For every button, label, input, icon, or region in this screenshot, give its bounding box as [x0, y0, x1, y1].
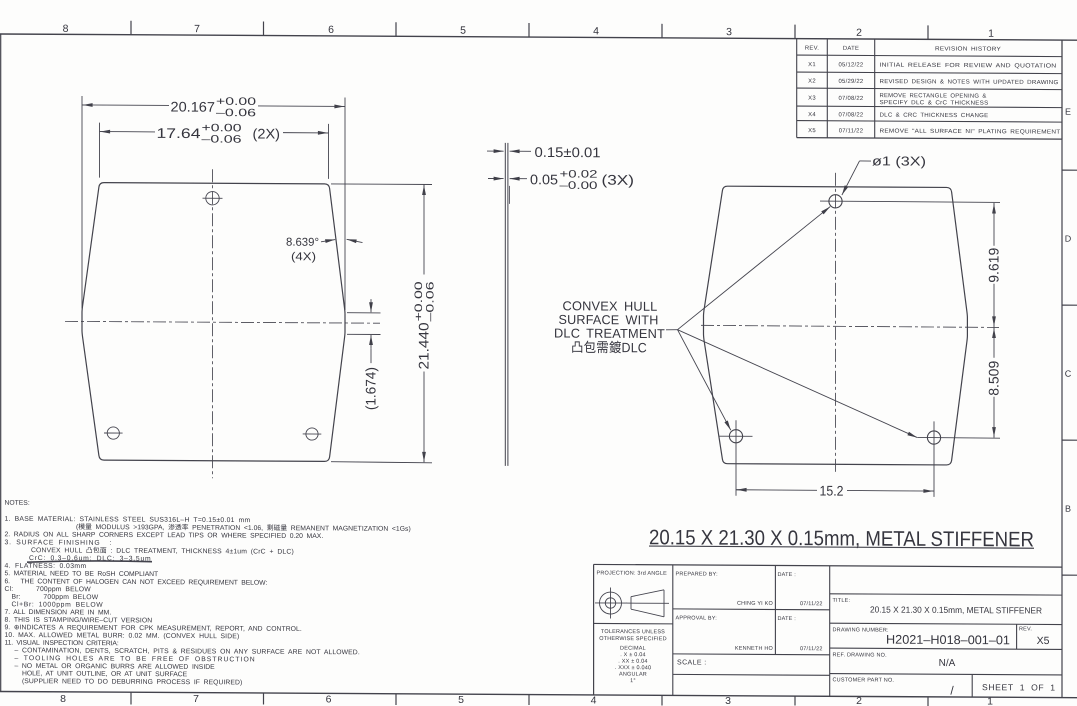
svg-text:E: E [1065, 107, 1071, 117]
svg-text:07/11/22: 07/11/22 [839, 128, 863, 134]
svg-text:1°: 1° [630, 678, 636, 684]
svg-text:7: 7 [194, 23, 200, 35]
svg-text:–0.06: –0.06 [425, 281, 437, 321]
svg-text:DRAWING NUMBER:: DRAWING NUMBER: [833, 627, 890, 633]
svg-text:. XX ± 0.04: . XX ± 0.04 [618, 659, 647, 665]
svg-text:CONVEX HULL 凸包面 : DLC TREATMEN: CONVEX HULL 凸包面 : DLC TREATMENT, THICKNE… [31, 545, 294, 556]
svg-text:(3X): (3X) [602, 172, 635, 188]
svg-text:REV.: REV. [805, 46, 819, 52]
svg-text:(SUPPLIER NEED TO DO DEBURRING: (SUPPLIER NEED TO DO DEBURRING PROCESS I… [22, 678, 243, 686]
svg-text:ø1 (3X): ø1 (3X) [872, 153, 926, 168]
svg-text:05/29/22: 05/29/22 [839, 79, 864, 85]
svg-text:C: C [1065, 369, 1072, 379]
svg-text:SCALE :: SCALE : [677, 659, 707, 666]
svg-text:PROJECTION: 3rd ANGLE: PROJECTION: 3rd ANGLE [597, 570, 668, 576]
svg-text:X5: X5 [808, 128, 816, 134]
svg-text:REV.: REV. [1019, 626, 1032, 632]
svg-text:07/08/22: 07/08/22 [839, 112, 864, 118]
svg-text:5. MATERIAL NEED TO BE RoSH CO: 5. MATERIAL NEED TO BE RoSH COMPLIANT [5, 570, 159, 578]
svg-text:DLC & CRC THICKNESS CHANGE: DLC & CRC THICKNESS CHANGE [880, 113, 989, 120]
svg-text:8.509: 8.509 [986, 360, 1002, 395]
svg-text:APPROVAL BY:: APPROVAL BY: [676, 615, 718, 621]
svg-text:REVISED DESIGN & NOTES WITH UP: REVISED DESIGN & NOTES WITH UPDATED DRAW… [880, 79, 1059, 86]
svg-text:3: 3 [725, 695, 731, 706]
svg-text:1. BASE MATERIAL: STAINLESS ST: 1. BASE MATERIAL: STAINLESS STEEL SUS316… [5, 516, 251, 524]
svg-text:07/11/22: 07/11/22 [800, 646, 823, 652]
svg-text:11. VISUAL INSPECTION CRITERIA: 11. VISUAL INSPECTION CRITERIA: [5, 640, 120, 648]
svg-text:8.639°: 8.639° [286, 237, 319, 249]
svg-text:SHEET 1 OF 1: SHEET 1 OF 1 [982, 682, 1055, 692]
svg-text:Cl: 700ppm BELOW: Cl: 700ppm BELOW [5, 586, 92, 593]
svg-text:CHING YI KO: CHING YI KO [737, 601, 774, 607]
svg-text:6: 6 [328, 24, 334, 36]
svg-text:07/11/22: 07/11/22 [800, 601, 823, 607]
svg-text:5: 5 [460, 25, 466, 37]
svg-text:NOTES:: NOTES: [5, 500, 31, 507]
svg-text:INITIAL RELEASE FOR REVIEW AND: INITIAL RELEASE FOR REVIEW AND QUOTATION [880, 63, 1057, 70]
svg-text:DATE: DATE [843, 46, 859, 52]
svg-text:21.440: 21.440 [416, 322, 432, 369]
svg-text:6: 6 [326, 694, 332, 706]
svg-text:DECIMAL: DECIMAL [620, 646, 646, 652]
svg-text:OTHERWISE SPECIFIED: OTHERWISE SPECIFIED [599, 636, 667, 642]
svg-text:15.2: 15.2 [820, 483, 844, 499]
svg-text:7. ALL DIMENSION ARE IN MM.: 7. ALL DIMENSION ARE IN MM. [5, 609, 112, 617]
svg-text:B: B [1065, 504, 1071, 514]
svg-text:(2X): (2X) [253, 125, 281, 141]
svg-text:HOLE, AT UNIT OUTLINE, OR AT U: HOLE, AT UNIT OUTLINE, OR AT UNIT SURFAC… [22, 670, 188, 678]
svg-text:+0.00: +0.00 [413, 281, 425, 321]
svg-text:SPECIFY DLC & CrC THICKNESS: SPECIFY DLC & CrC THICKNESS [880, 100, 989, 107]
svg-text:1: 1 [988, 28, 994, 40]
svg-text:DATE :: DATE : [778, 616, 797, 622]
svg-text:–0.06: –0.06 [216, 107, 256, 119]
svg-text:CUSTOMER PART NO.: CUSTOMER PART NO. [833, 677, 895, 683]
svg-text:0.05: 0.05 [530, 171, 558, 187]
svg-text:–0.06: –0.06 [202, 133, 242, 145]
svg-text:07/08/22: 07/08/22 [839, 96, 864, 102]
svg-text:X4: X4 [808, 112, 816, 118]
svg-text:REMOVE RECTANGLE OPENING &: REMOVE RECTANGLE OPENING & [880, 93, 987, 100]
svg-text:KENNETH HO: KENNETH HO [735, 646, 774, 652]
svg-text:8: 8 [63, 23, 69, 35]
svg-text:0.15±0.01: 0.15±0.01 [535, 144, 601, 160]
svg-text:ANGULAR: ANGULAR [619, 672, 647, 678]
svg-text:TOLERANCES UNLESS: TOLERANCES UNLESS [601, 629, 665, 635]
svg-text:4. FLATNESS: 0.03mm: 4. FLATNESS: 0.03mm [5, 563, 87, 570]
svg-text:4: 4 [593, 25, 599, 37]
svg-text:(1.674): (1.674) [363, 367, 379, 410]
svg-text:X5: X5 [1037, 635, 1050, 647]
svg-text:D: D [1065, 234, 1072, 244]
svg-text:3: 3 [726, 26, 732, 38]
svg-text:5: 5 [458, 694, 464, 706]
svg-text:9.619: 9.619 [986, 247, 1002, 282]
svg-text:H2021–H018–001–01: H2021–H018–001–01 [886, 633, 1010, 648]
svg-text:N/A: N/A [939, 658, 956, 669]
svg-text:3. SURFACE FINISHING :: 3. SURFACE FINISHING : [5, 539, 112, 547]
svg-text:DATE :: DATE : [778, 572, 797, 578]
svg-text:17.64: 17.64 [157, 125, 201, 141]
svg-text:20.15 X 21.30 X 0.15mm, METAL: 20.15 X 21.30 X 0.15mm, METAL STIFFENER [870, 605, 1042, 616]
svg-text:DLC TREATMENT: DLC TREATMENT [554, 325, 665, 341]
svg-text:Cl+Br: 1000ppm BELOW: Cl+Br: 1000ppm BELOW [12, 601, 104, 609]
svg-text:REMOVE "ALL SURFACE NI" PLATIN: REMOVE "ALL SURFACE NI" PLATING REQUIREM… [880, 129, 1061, 136]
svg-text:8. THIS IS STAMPING/WIRE–CUT V: 8. THIS IS STAMPING/WIRE–CUT VERSION [5, 617, 153, 625]
svg-text:(4X): (4X) [291, 251, 316, 263]
svg-text:X1: X1 [808, 62, 816, 68]
svg-text:20.167: 20.167 [171, 98, 216, 114]
svg-text:REF. DRAWING NO.: REF. DRAWING NO. [833, 652, 888, 658]
svg-text:2: 2 [856, 695, 862, 706]
svg-text:. XXX ± 0.040: . XXX ± 0.040 [615, 665, 651, 671]
svg-text:–0.00: –0.00 [560, 180, 598, 192]
svg-text:TITLE:: TITLE: [833, 598, 851, 604]
svg-text:/: / [950, 683, 954, 697]
svg-text:4: 4 [591, 695, 597, 706]
svg-text:1: 1 [987, 696, 993, 706]
svg-text:05/12/22: 05/12/22 [839, 62, 864, 68]
svg-text:8: 8 [60, 693, 66, 705]
svg-text:. X ± 0.04: . X ± 0.04 [620, 652, 646, 658]
svg-text:Br: 700ppm BELOW: Br: 700ppm BELOW [12, 594, 99, 602]
svg-text:2: 2 [856, 27, 862, 39]
svg-text:PREPARED BY:: PREPARED BY: [676, 571, 719, 577]
svg-text:X2: X2 [808, 79, 816, 85]
svg-text:凸包需鍍DLC: 凸包需鍍DLC [571, 339, 647, 355]
svg-text:REVISION HISTORY: REVISION HISTORY [935, 46, 1001, 52]
svg-text:X3: X3 [808, 96, 816, 102]
svg-text:7: 7 [193, 693, 199, 705]
